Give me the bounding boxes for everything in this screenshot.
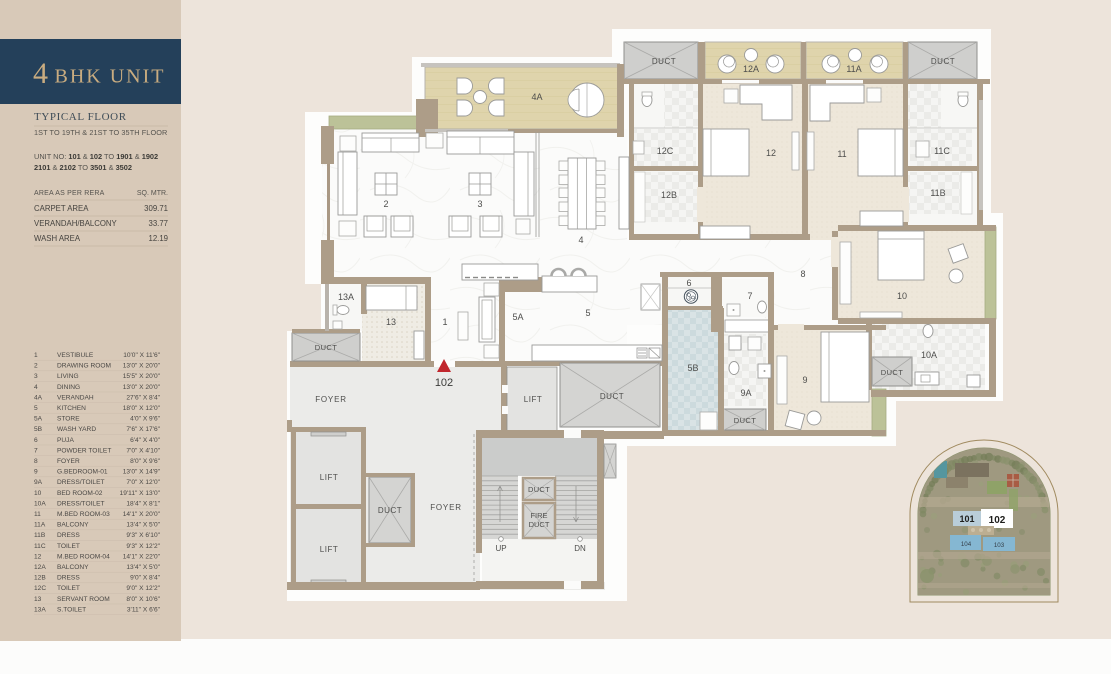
svg-text:13A: 13A — [338, 292, 354, 302]
svg-text:11B: 11B — [930, 188, 945, 198]
svg-text:TYPICAL FLOOR: TYPICAL FLOOR — [34, 111, 127, 123]
svg-text:8: 8 — [34, 458, 38, 465]
svg-text:DRESS/TOILET: DRESS/TOILET — [57, 479, 105, 486]
svg-text:103: 103 — [994, 542, 1005, 549]
svg-text:DINING: DINING — [57, 384, 80, 391]
svg-text:8'0" X 9'6": 8'0" X 9'6" — [130, 458, 161, 465]
svg-text:STORE: STORE — [57, 416, 80, 423]
svg-text:3: 3 — [34, 373, 38, 380]
svg-text:9'0" X 8'4": 9'0" X 8'4" — [130, 575, 161, 582]
svg-text:DUCT: DUCT — [528, 485, 550, 494]
svg-text:5A: 5A — [512, 312, 523, 322]
svg-text:7'6" X 17'6": 7'6" X 17'6" — [126, 426, 160, 433]
svg-text:18'4" X 8'1": 18'4" X 8'1" — [126, 500, 160, 507]
svg-text:KITCHEN: KITCHEN — [57, 405, 86, 412]
svg-text:5B: 5B — [34, 426, 43, 433]
svg-text:12B: 12B — [34, 575, 46, 582]
svg-text:WASH AREA: WASH AREA — [34, 234, 81, 243]
svg-text:14'1" X 20'0": 14'1" X 20'0" — [123, 511, 161, 518]
svg-text:9'3" X 6'10": 9'3" X 6'10" — [126, 532, 160, 539]
svg-text:BALCONY: BALCONY — [57, 522, 89, 529]
svg-text:13A: 13A — [34, 606, 46, 613]
svg-text:VESTIBULE: VESTIBULE — [57, 352, 94, 359]
svg-text:11: 11 — [837, 149, 846, 159]
svg-text:102: 102 — [435, 377, 453, 389]
svg-text:M.BED ROOM-04: M.BED ROOM-04 — [57, 553, 110, 560]
svg-text:5B: 5B — [687, 363, 698, 373]
svg-text:12A: 12A — [743, 64, 759, 74]
svg-text:10: 10 — [34, 490, 42, 497]
svg-text:13'4" X 5'0": 13'4" X 5'0" — [126, 564, 160, 571]
svg-text:CARPET AREA: CARPET AREA — [34, 204, 89, 213]
svg-text:LIVING: LIVING — [57, 373, 79, 380]
svg-text:FOYER: FOYER — [315, 395, 347, 404]
svg-text:12.19: 12.19 — [148, 234, 168, 243]
svg-text:3: 3 — [477, 199, 482, 209]
svg-text:9'3" X 12'2": 9'3" X 12'2" — [126, 543, 160, 550]
svg-text:6'4" X 4'0": 6'4" X 4'0" — [130, 437, 161, 444]
svg-text:5: 5 — [34, 405, 38, 412]
svg-text:4: 4 — [578, 235, 583, 245]
svg-text:101: 101 — [959, 514, 974, 524]
svg-text:27'6" X 8'4": 27'6" X 8'4" — [126, 394, 160, 401]
svg-text:13'4" X 5'0": 13'4" X 5'0" — [126, 522, 160, 529]
svg-text:4A: 4A — [531, 92, 542, 102]
svg-text:4A: 4A — [34, 394, 43, 401]
svg-text:13'0" X 20'0": 13'0" X 20'0" — [123, 384, 161, 391]
svg-text:6: 6 — [686, 278, 691, 288]
svg-text:SERVANT ROOM: SERVANT ROOM — [57, 596, 110, 603]
svg-text:7: 7 — [747, 291, 752, 301]
svg-text:18'0" X 12'0": 18'0" X 12'0" — [123, 405, 161, 412]
svg-text:DUCT: DUCT — [600, 392, 624, 401]
svg-text:AREA AS PER RERA: AREA AS PER RERA — [34, 190, 105, 197]
svg-text:POWDER TOILET: POWDER TOILET — [57, 447, 111, 454]
svg-text:G.BEDROOM-01: G.BEDROOM-01 — [57, 469, 108, 476]
svg-text:5A: 5A — [34, 416, 43, 423]
svg-text:33.77: 33.77 — [148, 219, 168, 228]
svg-text:SQ. MTR.: SQ. MTR. — [137, 190, 168, 197]
svg-text:1: 1 — [442, 317, 447, 327]
svg-text:8: 8 — [800, 269, 805, 279]
svg-text:7: 7 — [34, 447, 38, 454]
svg-text:4'0" X 9'6": 4'0" X 9'6" — [130, 416, 161, 423]
svg-text:FOYER: FOYER — [57, 458, 80, 465]
svg-text:9A: 9A — [34, 479, 43, 486]
svg-text:DUCT: DUCT — [529, 520, 550, 529]
svg-text:11A: 11A — [846, 64, 861, 74]
svg-text:9A: 9A — [740, 388, 751, 398]
svg-text:102: 102 — [989, 515, 1006, 526]
svg-text:M.BED ROOM-03: M.BED ROOM-03 — [57, 511, 110, 518]
svg-text:DUCT: DUCT — [315, 343, 337, 352]
svg-text:9: 9 — [802, 375, 807, 385]
svg-text:15'5" X 20'0": 15'5" X 20'0" — [123, 373, 161, 380]
svg-text:10: 10 — [897, 291, 907, 301]
svg-text:4: 4 — [34, 384, 38, 391]
svg-text:DUCT: DUCT — [652, 57, 676, 66]
svg-text:104: 104 — [961, 541, 972, 548]
svg-text:1ST TO 19TH & 21ST TO 35TH FLO: 1ST TO 19TH & 21ST TO 35TH FLOOR — [34, 128, 167, 137]
svg-text:WASH YARD: WASH YARD — [57, 426, 96, 433]
svg-text:UNIT NO: 101 & 102 TO 1901 & 1: UNIT NO: 101 & 102 TO 1901 & 1902 — [34, 152, 158, 161]
svg-text:309.71: 309.71 — [144, 204, 168, 213]
svg-text:1: 1 — [34, 352, 38, 359]
svg-text:DRAWING ROOM: DRAWING ROOM — [57, 363, 111, 370]
svg-text:12C: 12C — [657, 146, 674, 156]
svg-text:S.TOILET: S.TOILET — [57, 606, 86, 613]
svg-text:6: 6 — [34, 437, 38, 444]
svg-text:2: 2 — [34, 363, 38, 370]
svg-text:DUCT: DUCT — [931, 57, 955, 66]
svg-text:LIFT: LIFT — [524, 395, 542, 404]
svg-text:14'1" X 22'0": 14'1" X 22'0" — [123, 553, 161, 560]
svg-text:2101 & 2102 TO 3501 & 3502: 2101 & 2102 TO 3501 & 3502 — [34, 163, 132, 172]
svg-text:11A: 11A — [34, 522, 46, 529]
svg-text:VERANDAH/BALCONY: VERANDAH/BALCONY — [34, 219, 118, 228]
svg-text:13'0" X 14'9": 13'0" X 14'9" — [123, 469, 161, 476]
svg-text:FOYER: FOYER — [430, 503, 462, 512]
svg-text:9: 9 — [34, 469, 38, 476]
svg-text:7'0" X 4'10": 7'0" X 4'10" — [126, 447, 160, 454]
svg-text:DUCT: DUCT — [881, 368, 903, 377]
svg-text:19'11" X 13'0": 19'11" X 13'0" — [120, 490, 161, 497]
svg-text:BED ROOM-02: BED ROOM-02 — [57, 490, 103, 497]
svg-text:13: 13 — [34, 596, 42, 603]
svg-text:12: 12 — [766, 148, 776, 158]
svg-text:12B: 12B — [661, 190, 677, 200]
svg-text:DN: DN — [574, 544, 586, 553]
svg-text:7'0" X 12'0": 7'0" X 12'0" — [126, 479, 160, 486]
svg-text:TOILET: TOILET — [57, 585, 80, 592]
svg-text:12A: 12A — [34, 564, 46, 571]
svg-text:8'0" X 10'6": 8'0" X 10'6" — [126, 596, 160, 603]
svg-text:10A: 10A — [921, 350, 937, 360]
svg-text:12C: 12C — [34, 585, 46, 592]
svg-text:VERANDAH: VERANDAH — [57, 394, 94, 401]
svg-text:2: 2 — [383, 199, 388, 209]
svg-text:PUJA: PUJA — [57, 437, 74, 444]
svg-text:DUCT: DUCT — [378, 506, 402, 515]
svg-text:11B: 11B — [34, 532, 46, 539]
svg-text:5: 5 — [585, 308, 590, 318]
svg-text:13: 13 — [386, 317, 396, 327]
svg-text:BALCONY: BALCONY — [57, 564, 89, 571]
svg-text:LIFT: LIFT — [320, 545, 338, 554]
svg-text:DRESS/TOILET: DRESS/TOILET — [57, 500, 105, 507]
svg-text:10'0" X 11'6": 10'0" X 11'6" — [123, 352, 160, 359]
svg-text:DRESS: DRESS — [57, 575, 80, 582]
svg-text:FIRE: FIRE — [530, 511, 547, 520]
svg-text:UP: UP — [495, 544, 506, 553]
svg-text:11: 11 — [34, 511, 41, 518]
svg-text:11C: 11C — [934, 146, 950, 156]
svg-text:12: 12 — [34, 553, 42, 560]
svg-text:13'0" X 20'0": 13'0" X 20'0" — [123, 363, 161, 370]
svg-text:3'11" X 6'6": 3'11" X 6'6" — [127, 606, 161, 613]
svg-text:TOILET: TOILET — [57, 543, 80, 550]
svg-text:9'0" X 12'2": 9'0" X 12'2" — [126, 585, 160, 592]
svg-text:DUCT: DUCT — [734, 416, 756, 425]
svg-text:10A: 10A — [34, 500, 46, 507]
svg-text:DRESS: DRESS — [57, 532, 80, 539]
svg-text:LIFT: LIFT — [320, 473, 338, 482]
svg-text:11C: 11C — [34, 543, 46, 550]
